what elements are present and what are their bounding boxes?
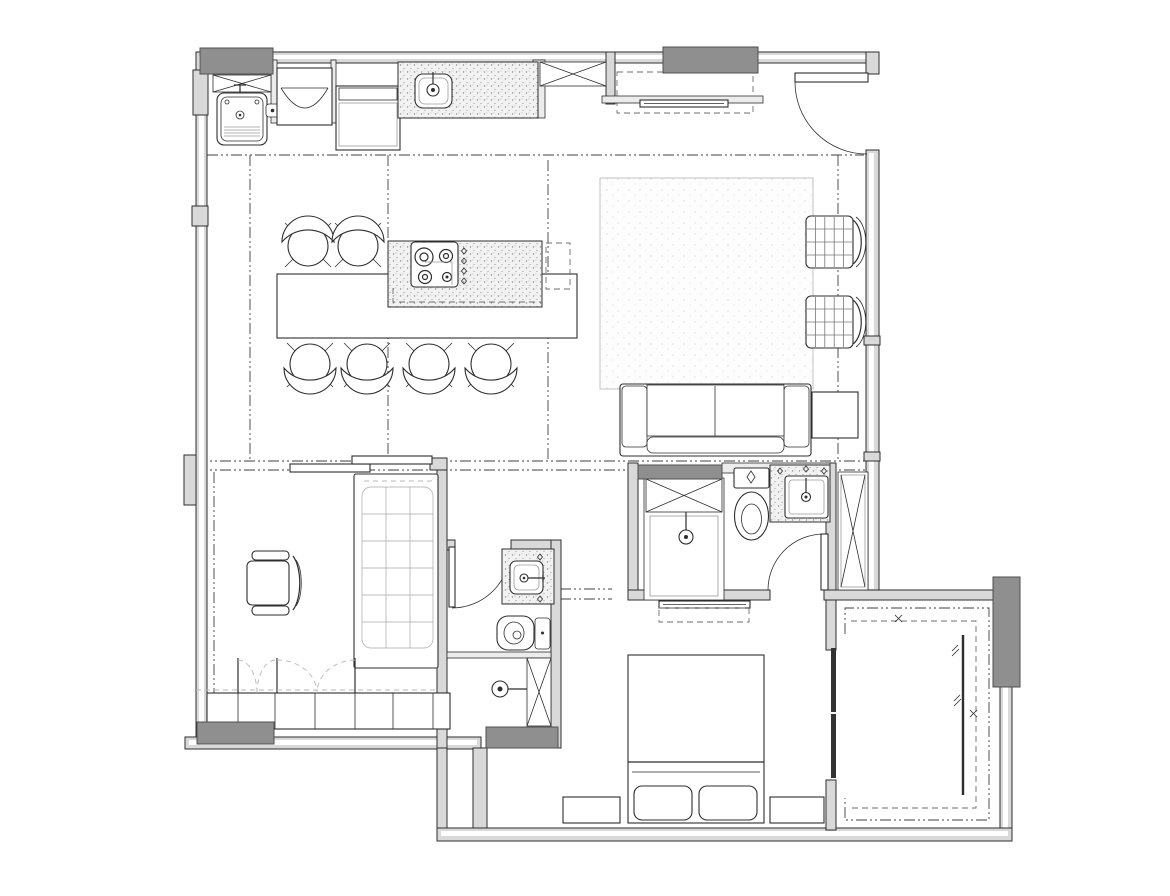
wall-masterbath-left (628, 463, 638, 600)
laundry-sink-icon (217, 84, 267, 145)
wall-closet-divider-a (826, 600, 836, 650)
sliding-door-icon (290, 456, 432, 472)
nightstand-right (770, 797, 824, 823)
floor-plan-page (0, 0, 1170, 896)
double-bed (628, 655, 764, 823)
single-bed (354, 474, 438, 668)
dining-island (277, 216, 577, 394)
wall-master-top-b (824, 590, 1002, 600)
window-mullion-mid (192, 206, 208, 226)
pillow-left (634, 786, 692, 820)
overhead-cabinet-x-icon (540, 62, 606, 86)
bedroom-2 (196, 456, 450, 729)
master-vanity (770, 465, 830, 522)
wall-closet-divider-b (826, 780, 836, 830)
closet-rail-outer (845, 608, 989, 820)
linen-cabinet-x-icon (838, 472, 868, 590)
column-icon (638, 465, 722, 479)
sofa (620, 384, 811, 456)
tv-icon (640, 100, 728, 107)
cooktop-icon (411, 242, 467, 287)
wall-hall-lower (437, 748, 447, 840)
window-sill-a (864, 336, 880, 345)
armchair-2 (806, 296, 866, 348)
column-icon (663, 47, 758, 73)
master-shower (644, 478, 724, 600)
column-icon (486, 727, 558, 748)
closet-rail-inner (851, 621, 976, 808)
wall-hall-lower-2 (473, 748, 487, 832)
bath2-toilet-icon (497, 616, 534, 650)
side-table (812, 392, 858, 438)
pillow-right (699, 786, 757, 820)
kitchen-sink-icon (415, 72, 452, 108)
master-toilet-icon (734, 468, 769, 540)
nightstand-left (563, 797, 620, 823)
master-bath-door-icon (768, 534, 828, 590)
closet-sliding-panels (831, 648, 836, 778)
bath2-drain-icon (535, 618, 550, 649)
entrance-door-icon (795, 73, 868, 154)
walk-in-closet (845, 608, 989, 820)
living-room (600, 72, 868, 456)
floor-plan-drawing (0, 0, 1170, 896)
armchair-1 (806, 216, 866, 268)
window-mullion-top (193, 70, 208, 115)
appliance-cabinet-icon (277, 68, 332, 125)
wall-bedroom2-step (184, 455, 196, 505)
master-tv-icon (659, 601, 750, 622)
bath2-door-icon (449, 547, 510, 608)
column-icon (200, 48, 273, 74)
laundry-cabinet-x-icon (213, 75, 271, 92)
wardrobe (196, 658, 450, 729)
bath2-duct-x-icon (527, 658, 551, 726)
window-sill-b (864, 452, 880, 461)
columns (197, 47, 1020, 748)
column-icon (993, 577, 1020, 687)
bathroom-2 (449, 547, 554, 726)
wall-right-corner (866, 52, 879, 74)
desk-chair-icon (247, 551, 301, 615)
column-icon (197, 722, 274, 744)
master-bedroom (563, 601, 836, 823)
oven-icon (336, 86, 400, 150)
rug (600, 178, 813, 389)
wall-shower2-partition (447, 652, 551, 658)
bath2-vanity (502, 549, 554, 604)
